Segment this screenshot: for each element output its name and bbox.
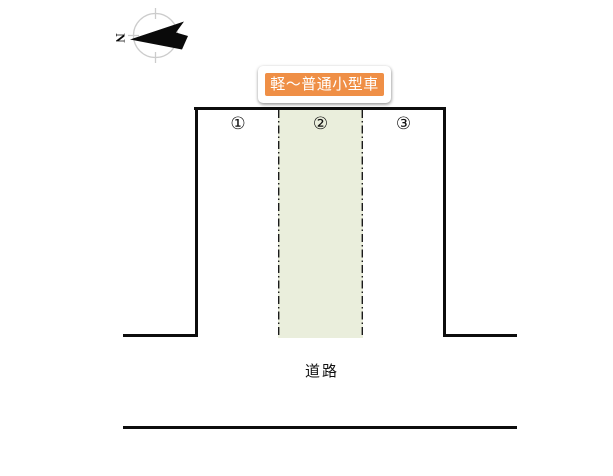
space-2-number: ② xyxy=(313,115,328,133)
vehicle-type-label: 軽〜普通小型車 xyxy=(265,73,384,96)
plot-border-right xyxy=(443,107,446,337)
space-3-number: ③ xyxy=(396,115,411,133)
north-letter: N xyxy=(112,29,128,47)
parking-space-2-highlighted[interactable]: ② xyxy=(278,110,363,338)
site-plan-canvas: N 軽〜普通小型車 ① ② ③ 道路 xyxy=(0,0,613,476)
plot-border-left xyxy=(195,107,198,337)
plot-border-foot-right xyxy=(443,334,517,337)
space-1-number: ① xyxy=(230,115,245,133)
vehicle-type-tooltip: 軽〜普通小型車 xyxy=(258,66,391,103)
road-label: 道路 xyxy=(292,360,352,381)
parking-space-1[interactable]: ① xyxy=(198,110,278,334)
plot-border-foot-left xyxy=(123,334,198,337)
plot-border-top xyxy=(194,107,446,110)
road-edge-line xyxy=(123,426,517,429)
parking-space-3[interactable]: ③ xyxy=(363,110,444,334)
